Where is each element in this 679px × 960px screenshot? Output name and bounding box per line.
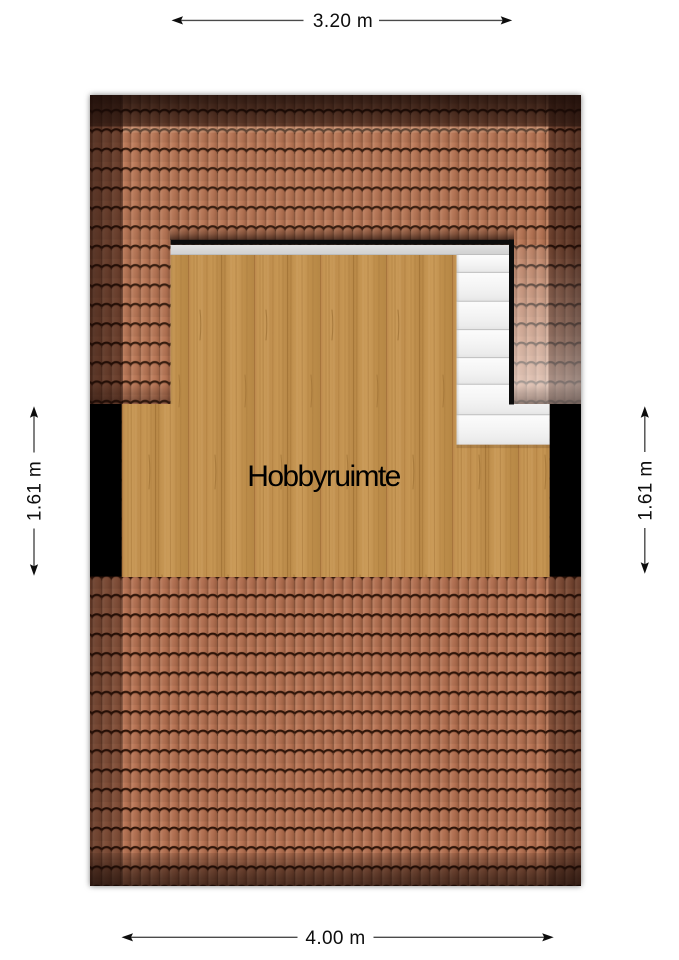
svg-text:Hobbyruimte: Hobbyruimte: [247, 460, 400, 493]
svg-text:4.00 m: 4.00 m: [305, 928, 365, 949]
svg-text:3.20 m: 3.20 m: [313, 11, 373, 32]
svg-text:1.61 m: 1.61 m: [635, 461, 656, 521]
svg-text:1.61 m: 1.61 m: [25, 461, 46, 521]
